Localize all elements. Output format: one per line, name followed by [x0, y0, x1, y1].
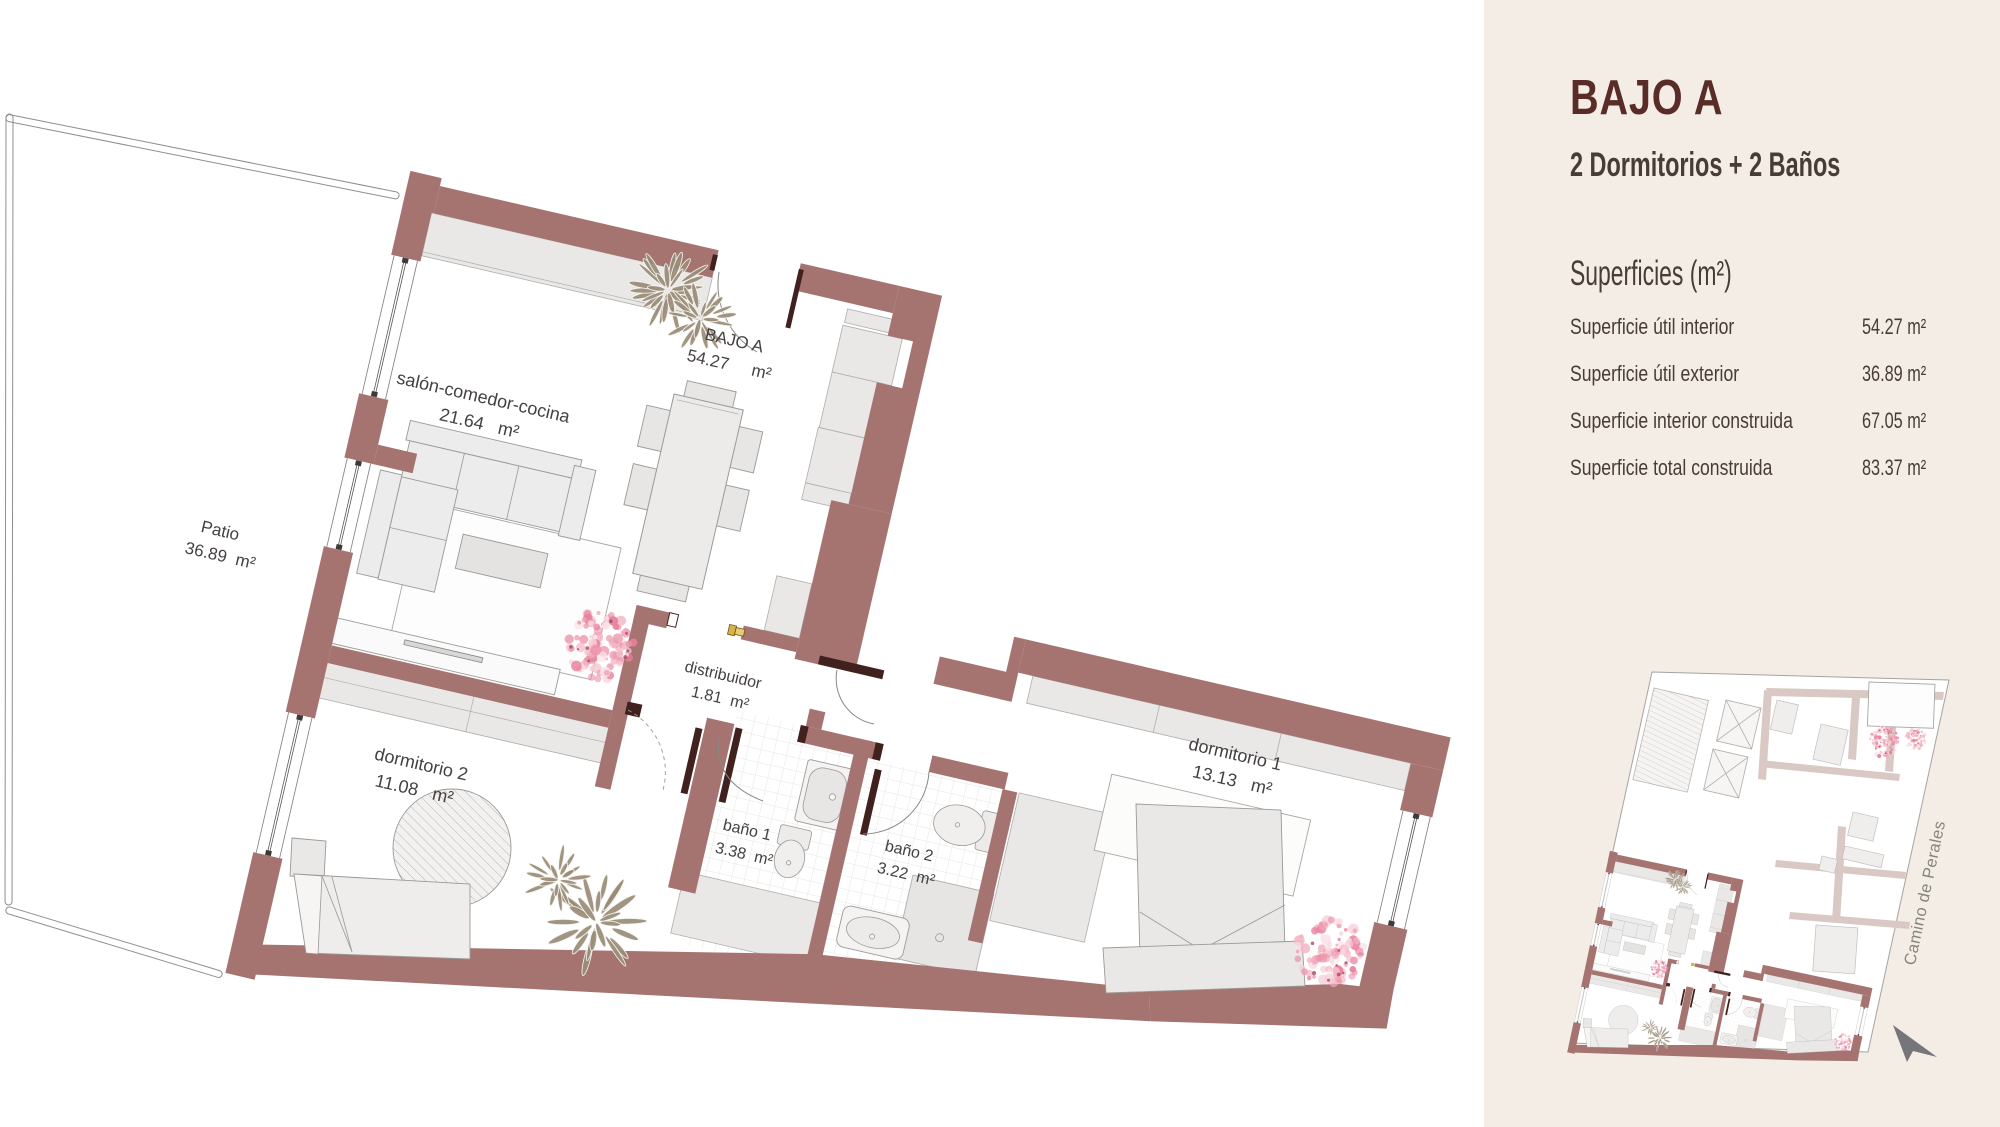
svg-text:Superficie útil exterior: Superficie útil exterior	[1570, 362, 1739, 386]
svg-text:Superficie interior construida: Superficie interior construida	[1570, 409, 1794, 433]
svg-text:Superficie útil interior: Superficie útil interior	[1570, 315, 1735, 339]
svg-text:67.05 m²: 67.05 m²	[1862, 409, 1927, 434]
svg-text:36.89 m²: 36.89 m²	[1862, 362, 1927, 387]
svg-text:83.37 m²: 83.37 m²	[1862, 456, 1927, 481]
svg-text:Superficie total construida: Superficie total construida	[1570, 456, 1773, 480]
svg-text:BAJO A: BAJO A	[1570, 71, 1723, 125]
svg-text:Superficies (m²): Superficies (m²)	[1570, 254, 1732, 293]
svg-text:2 Dormitorios + 2 Baños: 2 Dormitorios + 2 Baños	[1570, 147, 1840, 184]
svg-text:54.27 m²: 54.27 m²	[1862, 315, 1927, 340]
